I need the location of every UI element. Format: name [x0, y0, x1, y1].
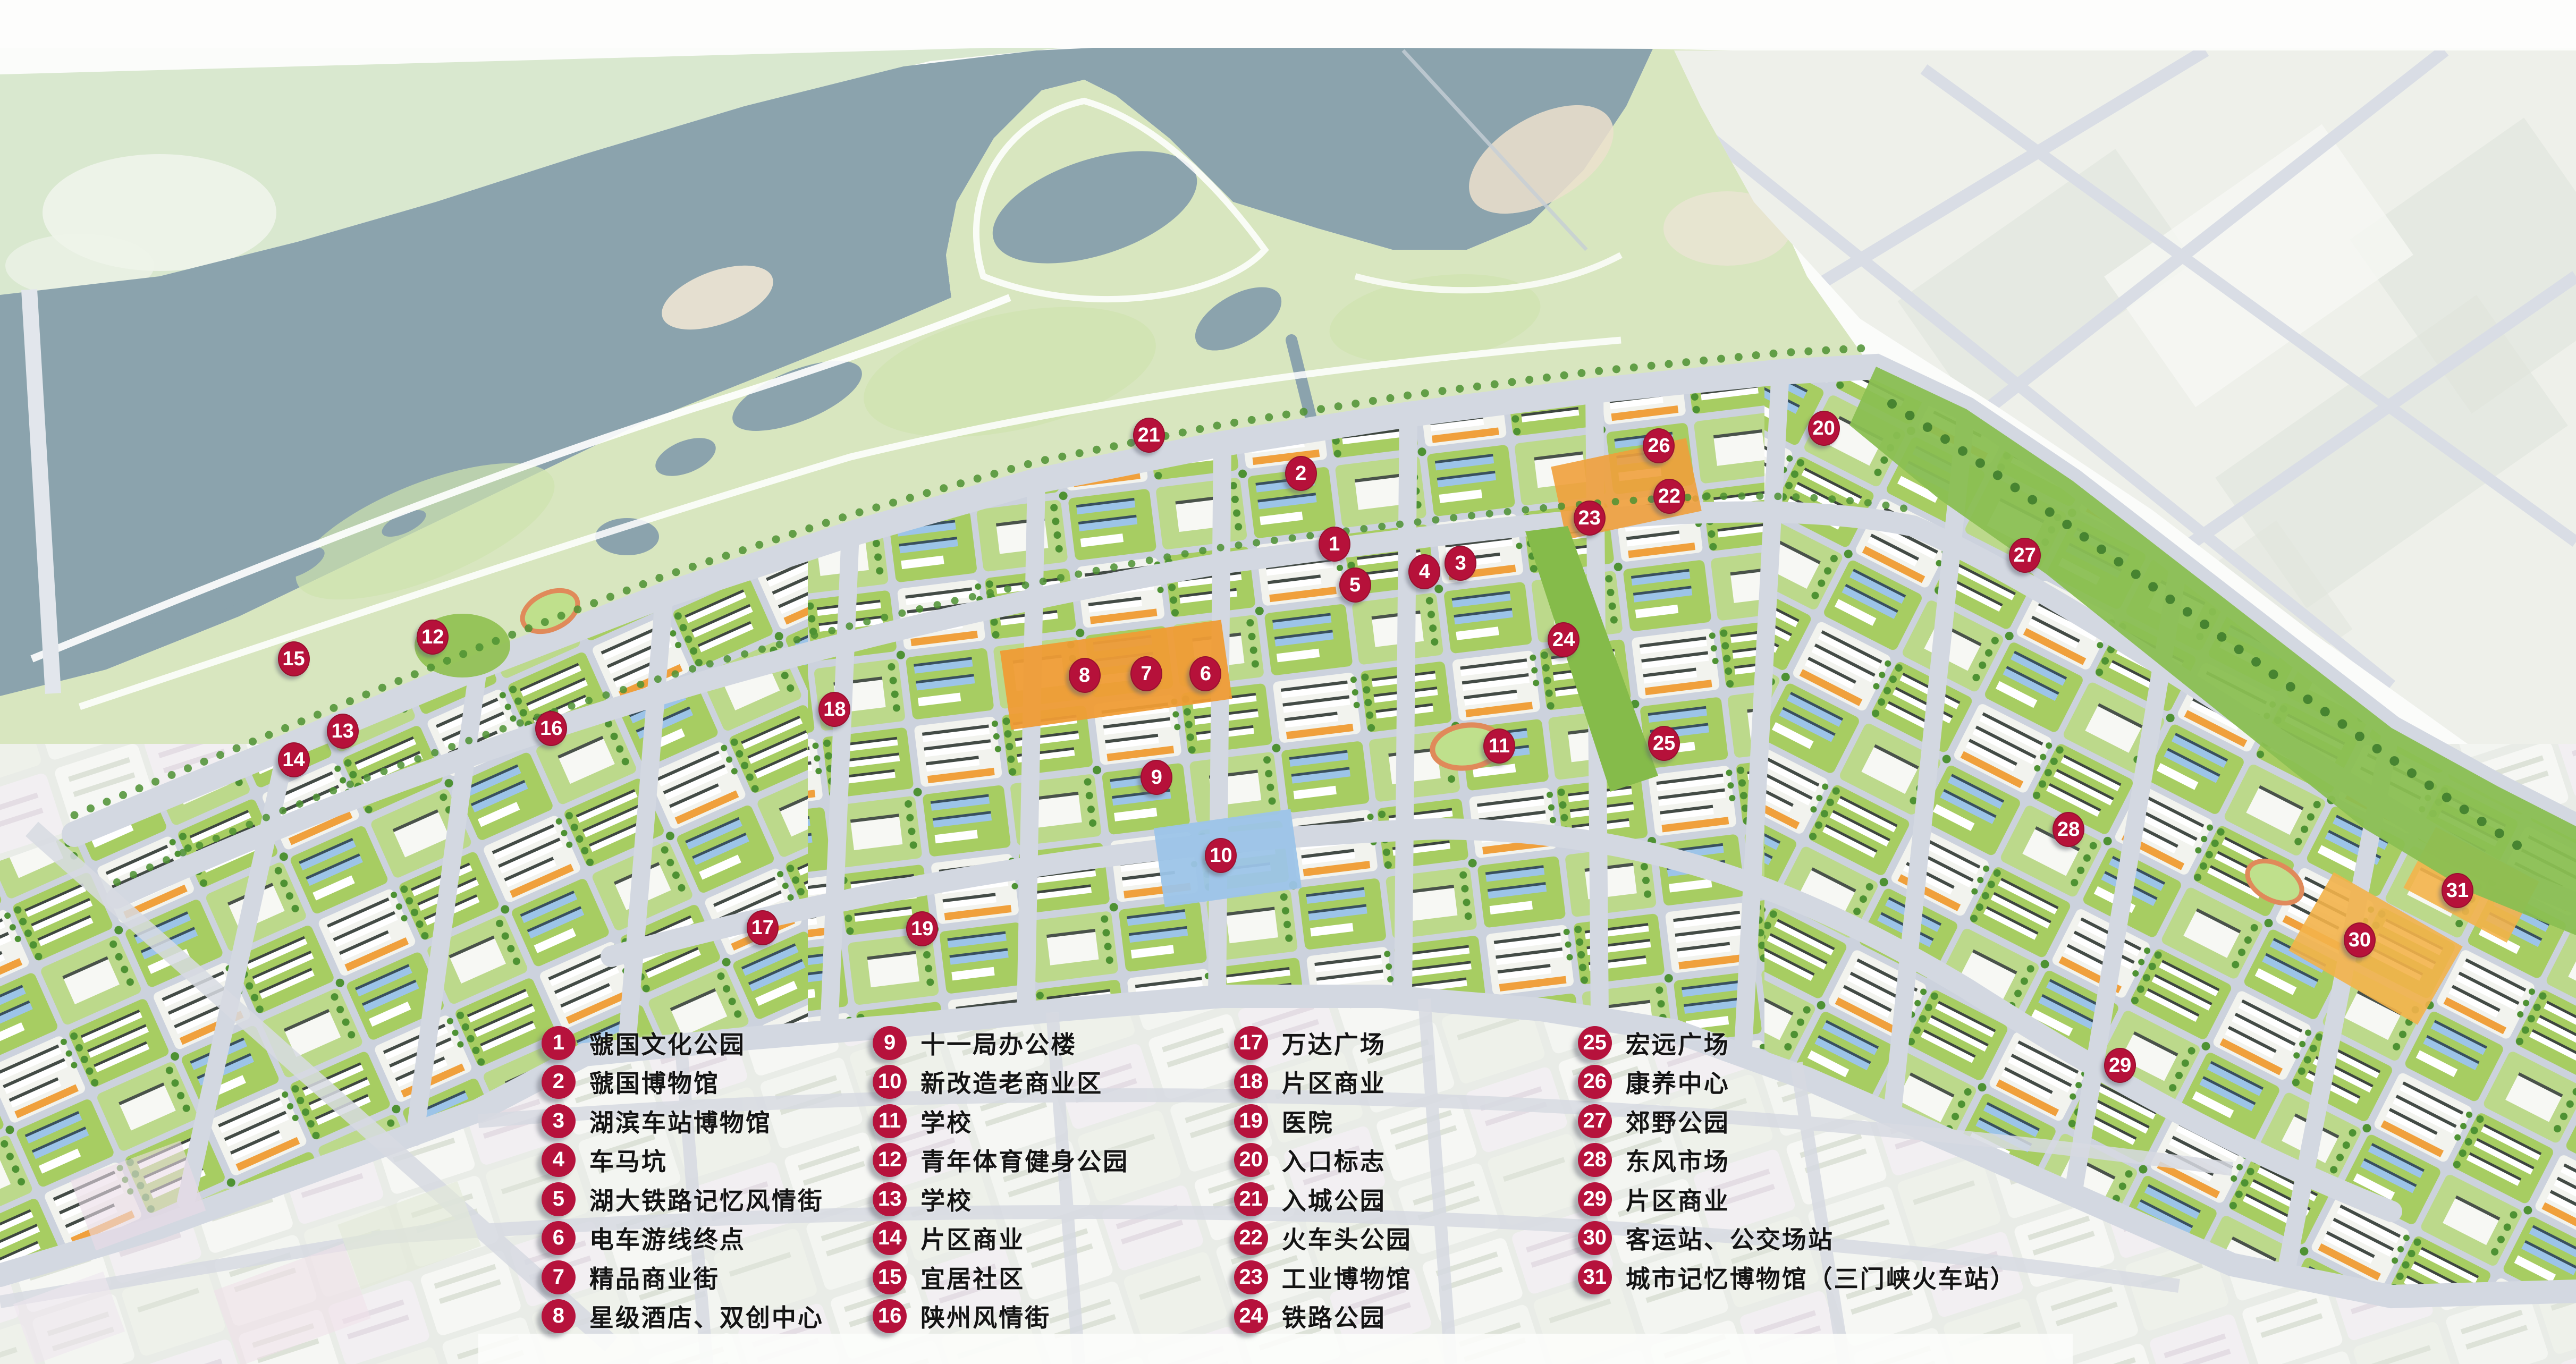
legend-label: 康养中心: [1626, 1064, 1730, 1099]
legend-label: 城市记忆博物馆（三门峡火车站）: [1626, 1260, 2016, 1295]
legend-badge: 18: [1234, 1065, 1268, 1099]
legend-label: 学校: [920, 1182, 973, 1217]
legend-item-25: 25宏远广场: [1578, 1023, 2016, 1063]
legend-item-19: 19医院: [1234, 1102, 1412, 1141]
legend-label: 十一局办公楼: [920, 1026, 1077, 1061]
legend-label: 铁路公园: [1282, 1299, 1386, 1334]
legend-item-24: 24铁路公园: [1234, 1297, 1412, 1336]
legend-label: 片区商业: [1626, 1182, 1730, 1217]
legend-item-4: 4车马坑: [542, 1141, 824, 1180]
legend-label: 入城公园: [1282, 1182, 1386, 1217]
legend-item-28: 28东风市场: [1578, 1141, 2016, 1180]
legend-badge: 12: [873, 1143, 907, 1177]
legend: 1虢国文化公园2虢国博物馆3湖滨车站博物馆4车马坑5湖大铁路记忆风情街6电车游线…: [0, 0, 2576, 1364]
legend-item-3: 3湖滨车站博物馆: [542, 1102, 824, 1141]
legend-badge: 25: [1578, 1026, 1612, 1060]
legend-badge: 29: [1578, 1182, 1612, 1216]
legend-label: 新改造老商业区: [920, 1064, 1103, 1099]
legend-badge: 19: [1234, 1104, 1268, 1138]
legend-column-2: 9十一局办公楼10新改造老商业区11学校12青年体育健身公园13学校14片区商业…: [873, 1023, 1129, 1336]
legend-item-8: 8星级酒店、双创中心: [542, 1297, 824, 1336]
legend-column-1: 1虢国文化公园2虢国博物馆3湖滨车站博物馆4车马坑5湖大铁路记忆风情街6电车游线…: [542, 1023, 824, 1336]
legend-badge: 22: [1234, 1221, 1268, 1255]
legend-badge: 15: [873, 1260, 907, 1294]
legend-item-31: 31城市记忆博物馆（三门峡火车站）: [1578, 1258, 2016, 1297]
planning-map: 1234567891011121314151617181920212223242…: [0, 0, 2576, 1364]
legend-item-21: 21入城公园: [1234, 1180, 1412, 1219]
legend-label: 虢国文化公园: [589, 1026, 746, 1061]
legend-badge: 10: [873, 1065, 907, 1099]
legend-badge: 6: [542, 1221, 576, 1255]
legend-label: 学校: [920, 1104, 973, 1139]
legend-label: 宜居社区: [920, 1260, 1025, 1295]
legend-column-3: 17万达广场18片区商业19医院20入口标志21入城公园22火车头公园23工业博…: [1234, 1023, 1412, 1336]
legend-item-10: 10新改造老商业区: [873, 1063, 1129, 1102]
legend-label: 医院: [1282, 1104, 1334, 1139]
legend-badge: 4: [542, 1143, 576, 1177]
legend-item-2: 2虢国博物馆: [542, 1063, 824, 1102]
legend-label: 虢国博物馆: [589, 1064, 720, 1099]
legend-label: 车马坑: [589, 1142, 668, 1177]
legend-badge: 17: [1234, 1026, 1268, 1060]
legend-item-16: 16陕州风情街: [873, 1297, 1129, 1336]
legend-label: 星级酒店、双创中心: [589, 1299, 824, 1334]
legend-label: 陕州风情街: [920, 1299, 1051, 1334]
legend-label: 片区商业: [1282, 1064, 1386, 1099]
legend-item-5: 5湖大铁路记忆风情街: [542, 1180, 824, 1219]
legend-badge: 1: [542, 1026, 576, 1060]
legend-item-11: 11学校: [873, 1102, 1129, 1141]
legend-badge: 26: [1578, 1065, 1612, 1099]
legend-item-17: 17万达广场: [1234, 1023, 1412, 1063]
legend-badge: 7: [542, 1260, 576, 1294]
legend-label: 万达广场: [1282, 1026, 1386, 1061]
legend-badge: 9: [873, 1026, 907, 1060]
legend-badge: 13: [873, 1182, 907, 1216]
legend-item-13: 13学校: [873, 1180, 1129, 1219]
legend-item-30: 30客运站、公交场站: [1578, 1219, 2016, 1258]
legend-item-9: 9十一局办公楼: [873, 1023, 1129, 1063]
legend-item-27: 27郊野公园: [1578, 1102, 2016, 1141]
legend-item-15: 15宜居社区: [873, 1258, 1129, 1297]
legend-label: 工业博物馆: [1282, 1260, 1412, 1295]
legend-item-7: 7精品商业街: [542, 1258, 824, 1297]
legend-label: 火车头公园: [1282, 1221, 1412, 1256]
legend-label: 宏远广场: [1626, 1026, 1730, 1061]
legend-label: 精品商业街: [589, 1260, 720, 1295]
legend-badge: 2: [542, 1065, 576, 1099]
legend-item-18: 18片区商业: [1234, 1063, 1412, 1102]
legend-label: 入口标志: [1282, 1142, 1386, 1177]
legend-badge: 16: [873, 1299, 907, 1333]
legend-badge: 24: [1234, 1299, 1268, 1333]
legend-badge: 20: [1234, 1143, 1268, 1177]
legend-item-6: 6电车游线终点: [542, 1219, 824, 1258]
legend-item-23: 23工业博物馆: [1234, 1258, 1412, 1297]
legend-label: 青年体育健身公园: [920, 1142, 1129, 1177]
legend-item-20: 20入口标志: [1234, 1141, 1412, 1180]
legend-badge: 30: [1578, 1221, 1612, 1255]
legend-item-12: 12青年体育健身公园: [873, 1141, 1129, 1180]
legend-label: 郊野公园: [1626, 1104, 1730, 1139]
legend-badge: 23: [1234, 1260, 1268, 1294]
legend-badge: 11: [873, 1104, 907, 1138]
legend-item-22: 22火车头公园: [1234, 1219, 1412, 1258]
legend-badge: 14: [873, 1221, 907, 1255]
legend-badge: 31: [1578, 1260, 1612, 1294]
legend-badge: 27: [1578, 1104, 1612, 1138]
legend-item-1: 1虢国文化公园: [542, 1023, 824, 1063]
legend-label: 湖滨车站博物馆: [589, 1104, 772, 1139]
legend-label: 客运站、公交场站: [1626, 1221, 1834, 1256]
legend-label: 东风市场: [1626, 1142, 1730, 1177]
legend-label: 湖大铁路记忆风情街: [589, 1182, 824, 1217]
legend-badge: 21: [1234, 1182, 1268, 1216]
legend-badge: 8: [542, 1299, 576, 1333]
legend-badge: 28: [1578, 1143, 1612, 1177]
legend-label: 电车游线终点: [589, 1221, 746, 1256]
legend-item-29: 29片区商业: [1578, 1180, 2016, 1219]
legend-item-26: 26康养中心: [1578, 1063, 2016, 1102]
legend-badge: 5: [542, 1182, 576, 1216]
legend-badge: 3: [542, 1104, 576, 1138]
legend-label: 片区商业: [920, 1221, 1025, 1256]
legend-column-4: 25宏远广场26康养中心27郊野公园28东风市场29片区商业30客运站、公交场站…: [1578, 1023, 2016, 1297]
legend-item-14: 14片区商业: [873, 1219, 1129, 1258]
